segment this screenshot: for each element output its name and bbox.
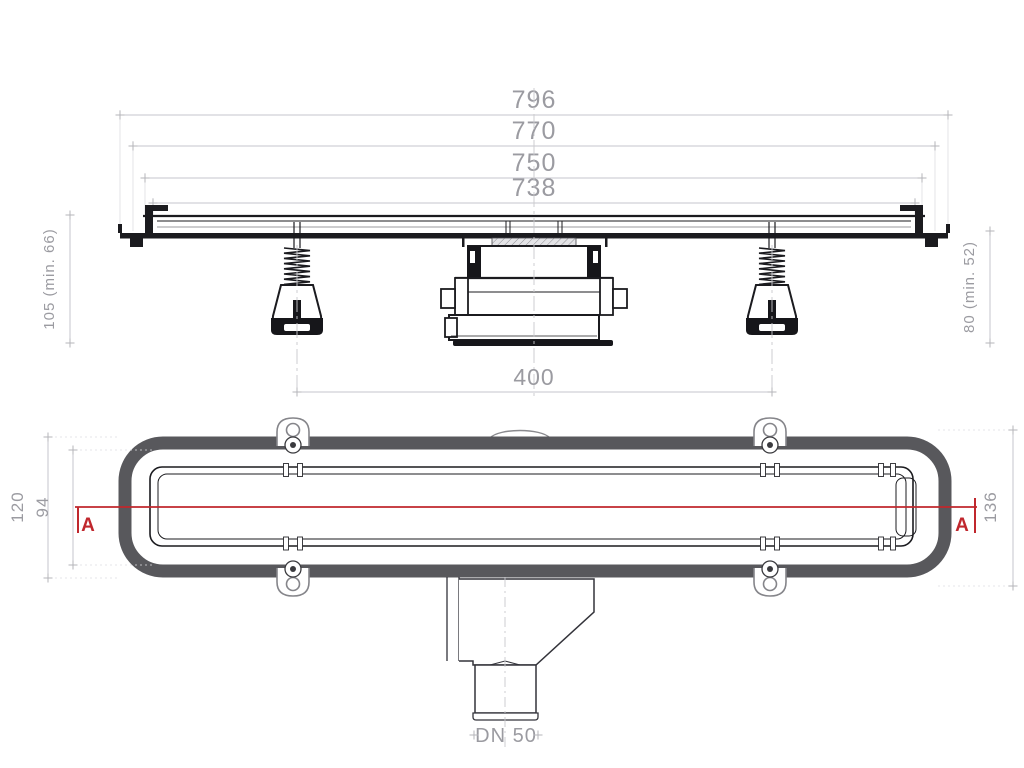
side-view: 796 770 750 738 105 (min. 66) 80 (min. 5… (41, 86, 995, 400)
outlet-pipe (475, 665, 536, 713)
trap-tab-left (441, 289, 455, 308)
section-label-right: A (955, 515, 969, 536)
technical-drawing-page: 796 770 750 738 105 (min. 66) 80 (min. 5… (0, 0, 1024, 768)
dim-105-min-66: 105 (min. 66) (41, 228, 58, 329)
drain-outlet: DN 50 (447, 577, 594, 748)
dim-94: 94 (33, 497, 52, 518)
trap-tab-right (613, 289, 627, 308)
drain-technical-drawing: 796 770 750 738 105 (min. 66) 80 (min. 5… (0, 0, 1024, 768)
height-dimension-right: 80 (min. 52) (961, 231, 990, 343)
plan-view: A A DN 50 120 94 136 (8, 418, 1018, 748)
section-label-left: A (81, 515, 95, 536)
height-dimension-left: 105 (min. 66) (41, 215, 70, 343)
feet-spacing-dimension: 400 (297, 364, 772, 392)
outlet-size-label: DN 50 (475, 725, 537, 747)
dim-400: 400 (513, 364, 554, 390)
dim-80-min-52: 80 (min. 52) (961, 241, 978, 333)
dim-120: 120 (8, 491, 27, 522)
end-cap-left (118, 205, 168, 247)
dim-136: 136 (981, 491, 1000, 522)
end-cap-right (900, 205, 950, 247)
